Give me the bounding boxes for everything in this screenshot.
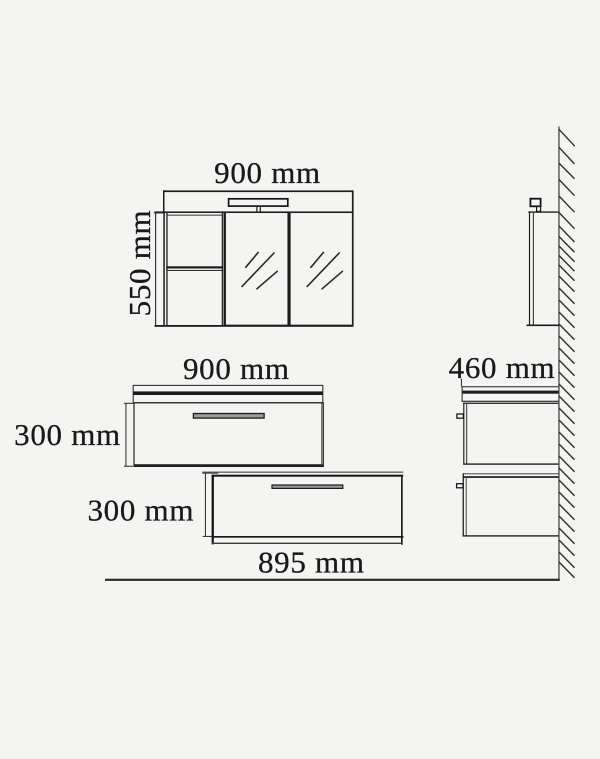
svg-text:550 mm: 550 mm <box>122 210 157 317</box>
svg-text:900 mm: 900 mm <box>183 351 290 386</box>
svg-text:900 mm: 900 mm <box>214 155 321 190</box>
svg-text:300 mm: 300 mm <box>14 417 121 452</box>
svg-text:300 mm: 300 mm <box>87 493 194 528</box>
svg-text:460 mm: 460 mm <box>449 350 556 385</box>
svg-text:895 mm: 895 mm <box>258 545 365 580</box>
